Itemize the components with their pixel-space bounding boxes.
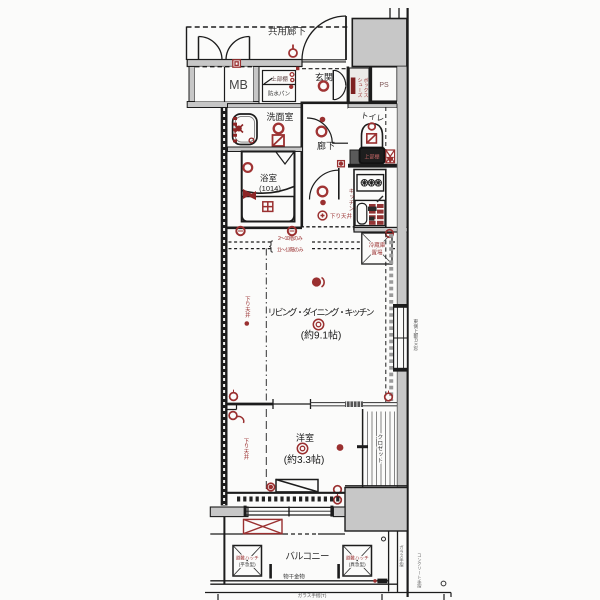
svg-text:洗面室: 洗面室 [266, 111, 293, 122]
svg-text:MB: MB [229, 78, 248, 92]
svg-text:キッチン: キッチン [347, 188, 354, 212]
svg-text:上部棚: 上部棚 [364, 154, 379, 161]
svg-text:避難ハッチ: 避難ハッチ [346, 555, 369, 562]
svg-text:(約3.3帖): (約3.3帖) [284, 453, 325, 466]
svg-text:避難ハッチ: 避難ハッチ [236, 555, 259, 562]
svg-text:冷蔵庫: 冷蔵庫 [369, 241, 386, 249]
svg-text:(平急型): (平急型) [239, 561, 256, 568]
svg-text:クロゼット: クロゼット [376, 434, 383, 463]
svg-text:ボックス: ボックス [363, 77, 369, 98]
svg-text:リビング・ダイニング・キッチン: リビング・ダイニング・キッチン [267, 307, 374, 318]
svg-text:浴室: 浴室 [260, 173, 278, 183]
svg-text:コンクリート手摺: コンクリート手摺 [417, 553, 423, 590]
svg-text:(約9.1帖): (約9.1帖) [301, 329, 342, 342]
svg-text:11〜13階のみ: 11〜13階のみ [277, 247, 304, 254]
svg-text:上部棚: 上部棚 [271, 75, 288, 83]
svg-text:下り天井: 下り天井 [243, 438, 250, 461]
svg-text:2〜10階のみ: 2〜10階のみ [278, 235, 303, 242]
svg-text:(異急型): (異急型) [349, 561, 366, 568]
svg-text:ガラス手摺: ガラス手摺 [399, 544, 405, 569]
svg-text:バルコニー: バルコニー [285, 552, 329, 563]
svg-text:物干金物: 物干金物 [283, 573, 305, 581]
svg-text:洋室: 洋室 [296, 432, 314, 443]
svg-text:ガラス手摺(T): ガラス手摺(T) [298, 592, 327, 599]
svg-text:共用廊下: 共用廊下 [268, 26, 306, 38]
svg-text:防水パン: 防水パン [268, 90, 291, 98]
svg-text:PS: PS [379, 82, 389, 89]
svg-text:置場: 置場 [371, 249, 383, 257]
svg-text:下り天井: 下り天井 [244, 296, 251, 319]
svg-text:{: { [269, 238, 274, 253]
svg-text:下り天井: 下り天井 [330, 212, 353, 220]
